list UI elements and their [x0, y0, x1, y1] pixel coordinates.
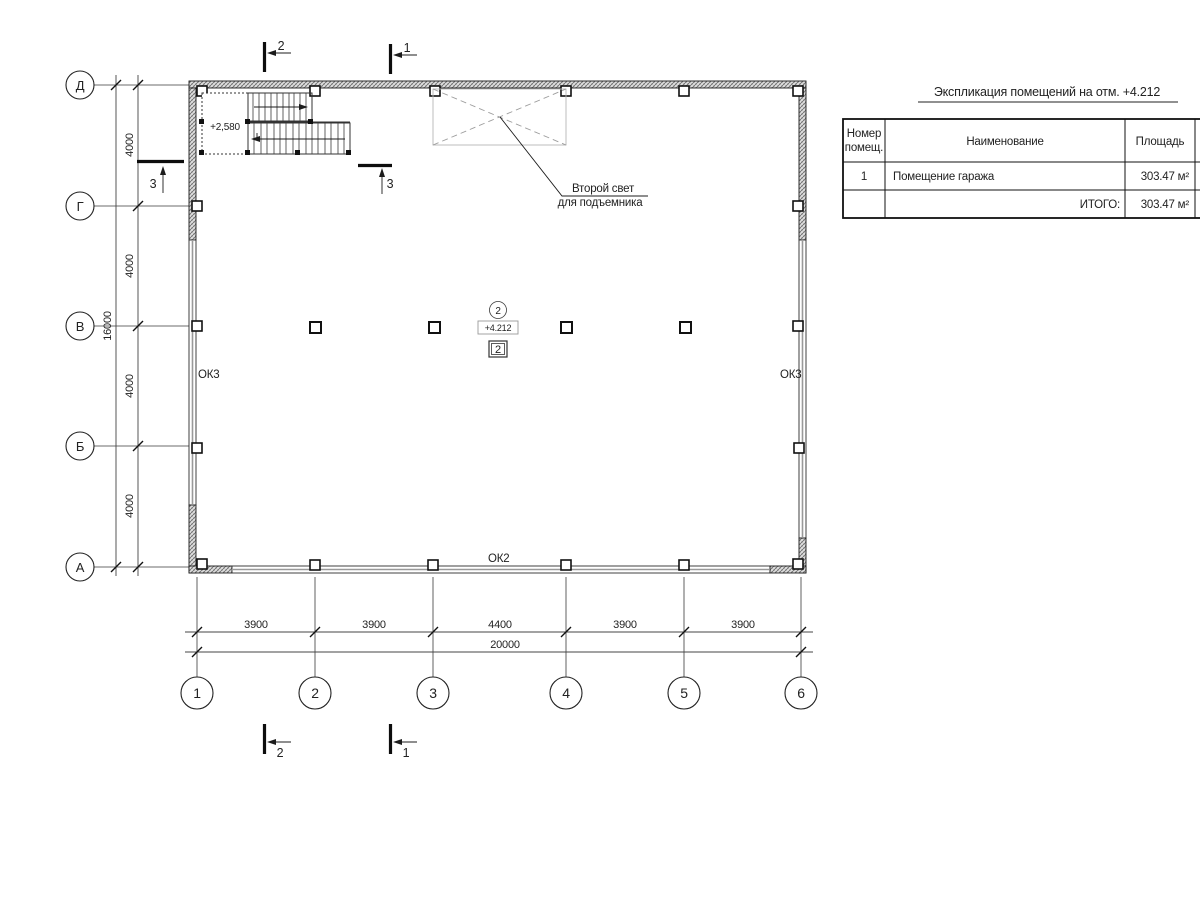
stair-arrow-down-icon — [251, 136, 260, 142]
th-number-line1: Номер — [847, 128, 881, 140]
section-side-left-label: 3 — [150, 177, 157, 191]
room-schedule: Экспликация помещений на отм. +4.212 Ном… — [843, 85, 1200, 218]
dim-left-2: 4000 — [124, 254, 136, 278]
axis-row-g: Г — [77, 199, 84, 214]
dim-left-4: 4000 — [124, 494, 136, 518]
cell-room-area: 303.47 м² — [1141, 171, 1190, 183]
th-area: Площадь — [1136, 136, 1185, 148]
dim-left-3: 4000 — [124, 374, 136, 398]
window-labels: ОК3 ОК3 ОК2 — [198, 369, 801, 565]
axis-markers-left: Д Г В Б А — [66, 71, 94, 581]
dim-left-1: 4000 — [124, 133, 136, 157]
void-opening: Второй свет для подъемника — [433, 89, 648, 209]
window-right-label: ОК3 — [780, 369, 801, 381]
void-note-line2: для подъемника — [558, 197, 644, 209]
void-note-line1: Второй свет — [572, 183, 635, 195]
axis-col-2: 2 — [311, 685, 319, 701]
table-total-row: ИТОГО: 303.47 м² — [1080, 199, 1190, 211]
window-left-label: ОК3 — [198, 369, 219, 381]
dim-bottom-4: 3900 — [613, 619, 637, 631]
axis-col-6: 6 — [797, 685, 805, 701]
cell-room-name: Помещение гаража — [893, 171, 995, 183]
section-bottom-left-label: 2 — [277, 746, 284, 760]
window-right — [799, 240, 806, 538]
detail-circle-label: 2 — [495, 306, 501, 317]
floor-plan-sheet: 4000 4000 4000 4000 16000 Д Г В Б А — [0, 0, 1200, 900]
axis-row-a: А — [76, 560, 85, 575]
stair-level-label: +2,580 — [210, 122, 240, 133]
window-left — [189, 240, 196, 505]
staircase: +2,580 — [199, 93, 351, 155]
wall-left-upper — [189, 88, 196, 240]
dim-bottom-2: 3900 — [362, 619, 386, 631]
wall-right-upper — [799, 88, 806, 240]
node-mark-label: 2 — [495, 344, 501, 356]
cell-total-area: 303.47 м² — [1141, 199, 1190, 211]
dim-bottom-total: 20000 — [490, 639, 520, 651]
section-top-right-label: 1 — [404, 41, 411, 55]
axis-col-3: 3 — [429, 685, 437, 701]
dim-bottom-3: 4400 — [488, 619, 512, 631]
axis-col-1: 1 — [193, 685, 201, 701]
wall-left-lower — [189, 505, 196, 573]
cell-total-label: ИТОГО: — [1080, 199, 1120, 211]
dim-left-total: 16000 — [102, 311, 114, 341]
th-number-line2: помещ. — [845, 142, 883, 154]
section-bottom-right-label: 1 — [403, 746, 410, 760]
th-name: Наименование — [966, 136, 1043, 148]
left-dimension-labels: 4000 4000 4000 4000 16000 — [102, 133, 136, 518]
center-marks: 2 +4.212 2 — [478, 302, 518, 358]
window-bottom-label: ОК2 — [488, 553, 509, 565]
wall-bottom-left-return — [189, 566, 232, 573]
floor-plan-drawing: 4000 4000 4000 4000 16000 Д Г В Б А — [0, 0, 1200, 900]
dim-bottom-1: 3900 — [244, 619, 268, 631]
axis-row-b: Б — [76, 439, 84, 454]
axis-col-5: 5 — [680, 685, 688, 701]
section-side-right-label: 3 — [387, 177, 394, 191]
cell-room-number: 1 — [861, 171, 867, 183]
axis-row-d: Д — [76, 78, 85, 93]
table-row: 1 Помещение гаража 303.47 м² — [861, 171, 1189, 183]
axis-row-v: В — [76, 319, 84, 334]
wall-top — [189, 81, 806, 88]
axis-col-4: 4 — [562, 685, 570, 701]
axis-markers-bottom: 1 2 3 4 5 6 — [181, 677, 817, 709]
room-schedule-title: Экспликация помещений на отм. +4.212 — [934, 85, 1161, 99]
dim-bottom-5: 3900 — [731, 619, 755, 631]
bottom-dimensions: 3900 3900 4400 3900 3900 20000 1 2 3 4 5… — [181, 577, 817, 709]
level-mark-label: +4.212 — [485, 323, 512, 333]
stair-arrow-up-icon — [299, 104, 308, 110]
section-top-left-label: 2 — [278, 39, 285, 53]
